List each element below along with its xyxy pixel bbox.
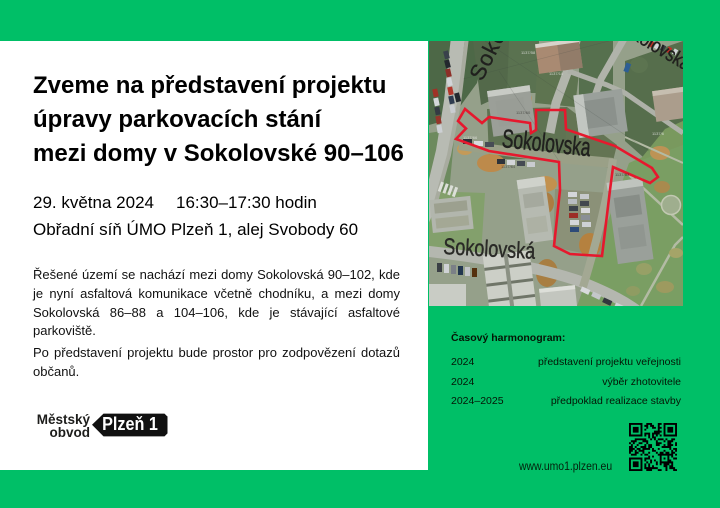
svg-text:1137/83: 1137/83: [615, 172, 630, 177]
svg-text:Sokolovská: Sokolovská: [443, 233, 536, 264]
svg-text:1137/10: 1137/10: [549, 71, 564, 76]
svg-text:1137/60: 1137/60: [516, 110, 531, 115]
svg-text:1137/58: 1137/58: [521, 50, 536, 55]
svg-text:1137/6: 1137/6: [652, 131, 665, 136]
svg-text:1137/64: 1137/64: [501, 164, 516, 169]
svg-text:1137/66: 1137/66: [463, 135, 478, 140]
